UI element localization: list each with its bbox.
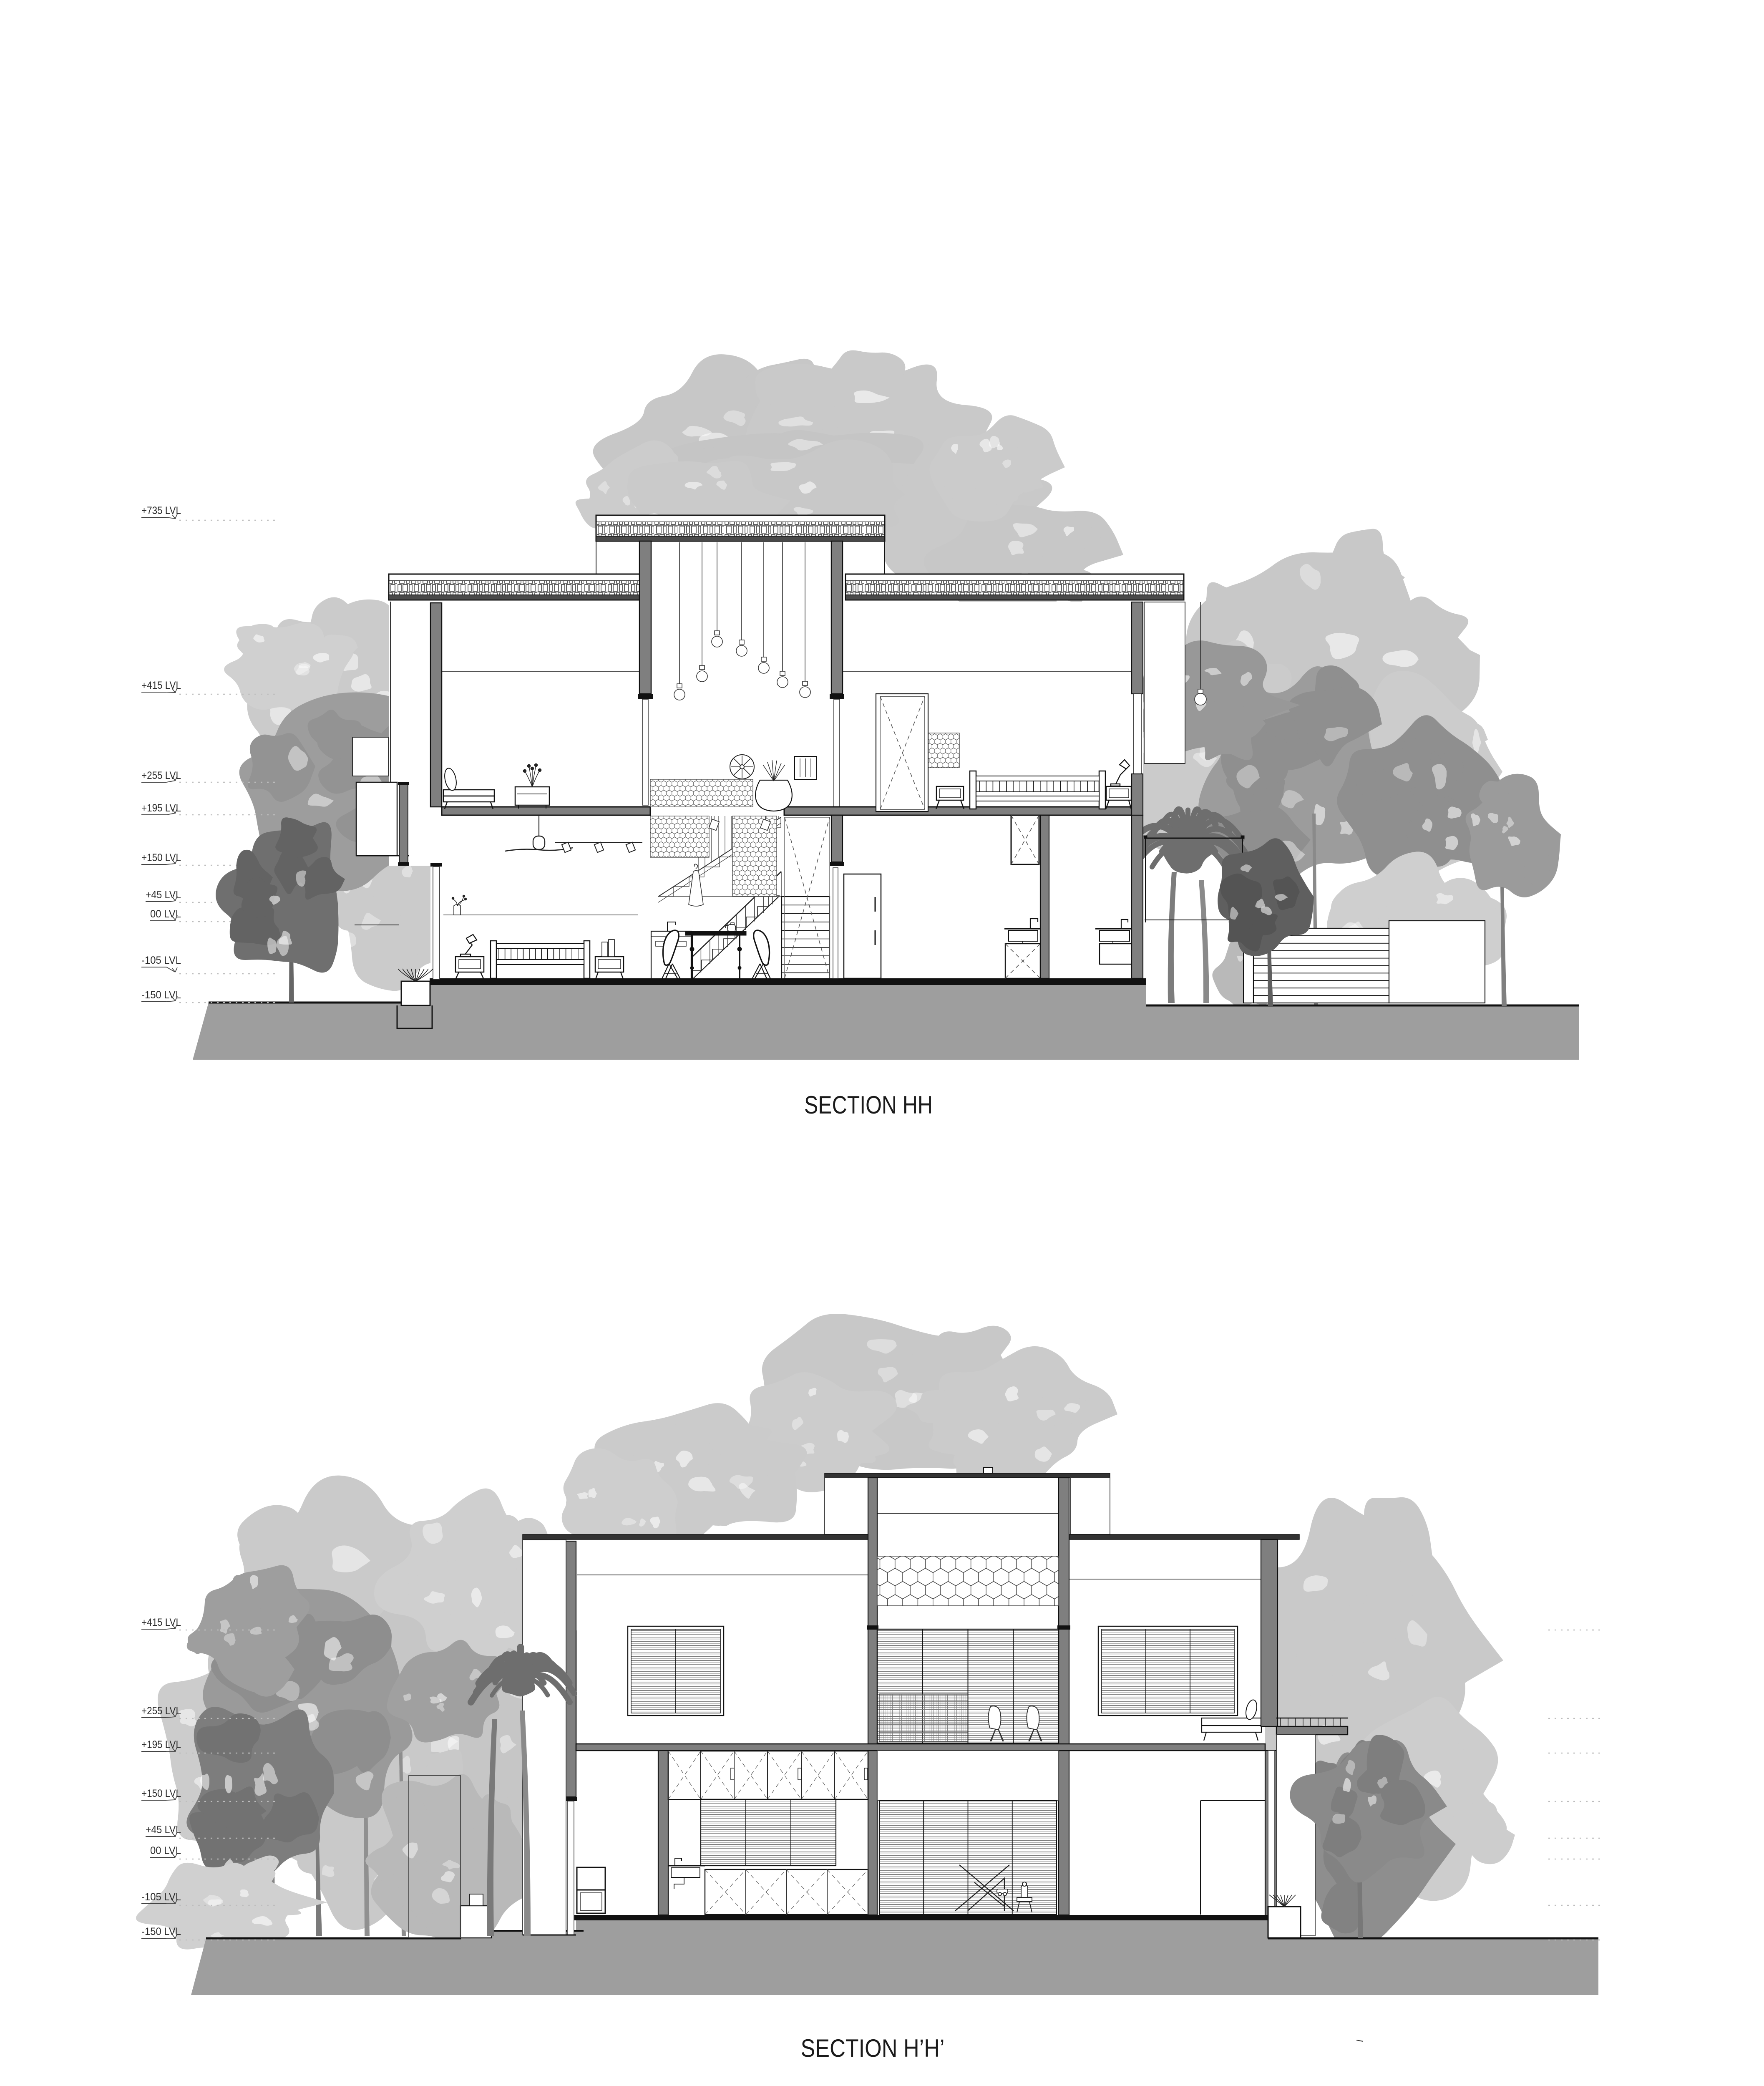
svg-text:00 LVL: 00 LVL <box>150 908 181 920</box>
svg-text:+150 LVL: +150 LVL <box>141 852 181 864</box>
svg-text:-105 LVL: -105 LVL <box>141 955 181 966</box>
svg-text:SECTION HH: SECTION HH <box>804 1091 933 1119</box>
svg-text:+45 LVL: +45 LVL <box>146 1824 181 1836</box>
svg-text:-150 LVL: -150 LVL <box>141 989 181 1001</box>
svg-text:+195 LVL: +195 LVL <box>141 1739 181 1751</box>
svg-text:+255 LVL: +255 LVL <box>141 770 181 781</box>
svg-text:+735 LVL: +735 LVL <box>141 505 181 516</box>
svg-text:-150 LVL: -150 LVL <box>141 1926 181 1937</box>
svg-text:+255 LVL: +255 LVL <box>141 1705 181 1717</box>
svg-text:+150 LVL: +150 LVL <box>141 1788 181 1799</box>
svg-text:SECTION H’H’: SECTION H’H’ <box>801 2034 945 2062</box>
svg-text:+415 LVL: +415 LVL <box>141 680 181 691</box>
svg-text:+415 LVL: +415 LVL <box>141 1617 181 1628</box>
svg-text:-105 LVL: -105 LVL <box>141 1891 181 1903</box>
svg-text:+195 LVL: +195 LVL <box>141 802 181 814</box>
